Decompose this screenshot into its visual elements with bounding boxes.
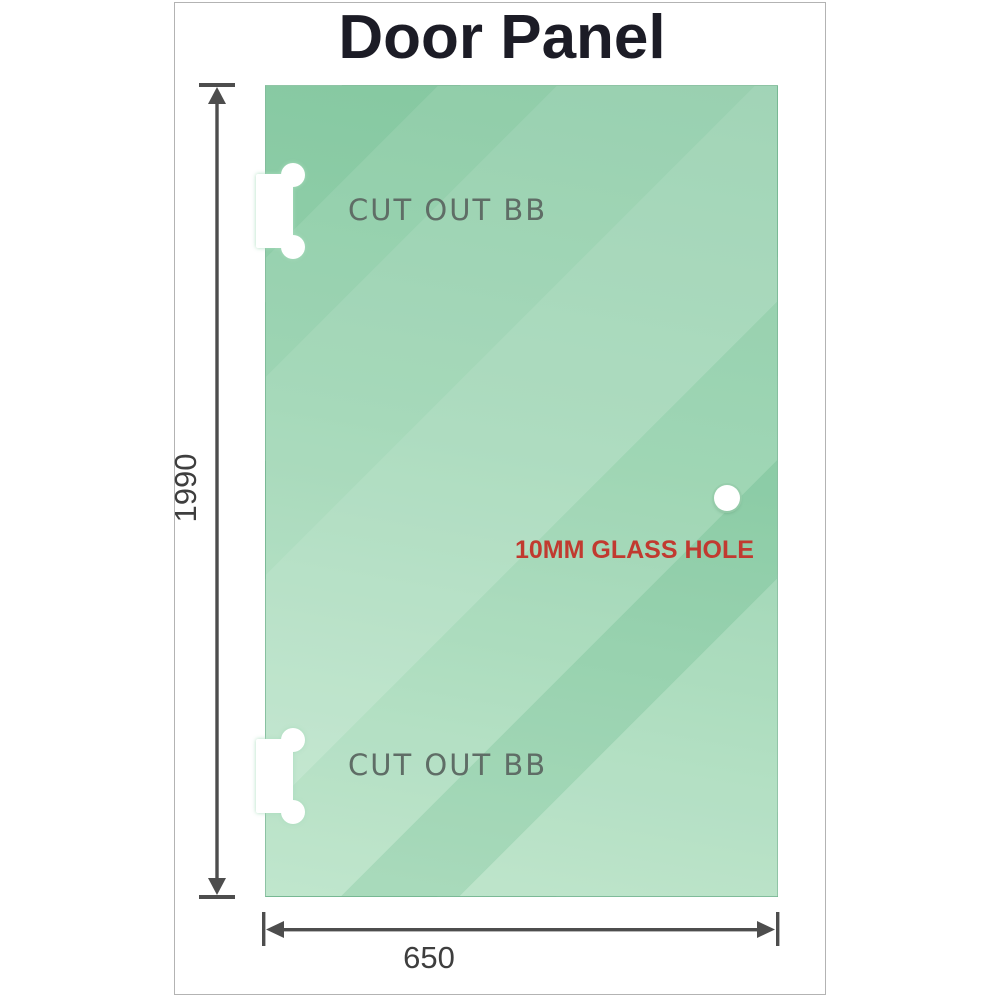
- width-dimension-right-tick: [776, 912, 779, 946]
- dimension-overlay: [0, 0, 1000, 1000]
- hinge-cutout-top: [256, 163, 308, 259]
- height-dimension-top-cap: [199, 83, 235, 87]
- dimension-arrow-right-icon: [757, 921, 775, 938]
- height-dimension-value: 1990: [170, 418, 210, 558]
- hinge-cutout-bottom: [256, 728, 308, 824]
- cutout-top-label: CUT OUT BB: [348, 196, 608, 225]
- glass-hole: [714, 485, 740, 511]
- width-dimension-left-tick: [262, 912, 265, 946]
- height-dimension-shaft: [215, 100, 218, 882]
- height-dimension-bottom-cap: [199, 895, 235, 899]
- width-dimension-value: 650: [369, 942, 489, 973]
- cutout-bottom-label: CUT OUT BB: [348, 751, 608, 780]
- diagram-canvas: Door Panel: [0, 0, 1000, 1000]
- width-dimension-line: [262, 912, 779, 946]
- glass-hole-label: 10MM GLASS HOLE: [515, 538, 715, 563]
- width-dimension-shaft: [278, 928, 762, 931]
- dimension-arrow-down-icon: [208, 878, 226, 895]
